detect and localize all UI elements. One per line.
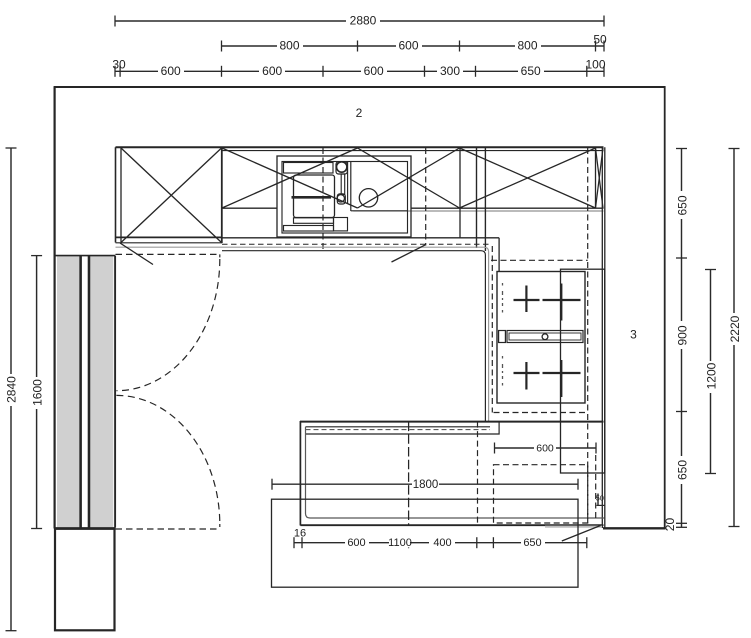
svg-text:3: 3 [630,328,637,342]
svg-text:600: 600 [262,64,282,78]
svg-text:300: 300 [440,64,460,78]
svg-text:650: 650 [675,195,689,215]
svg-text:20: 20 [663,518,677,532]
svg-text:800: 800 [517,39,537,53]
svg-text:600: 600 [536,443,554,455]
svg-text:30: 30 [112,58,126,72]
svg-text:16: 16 [294,528,306,540]
svg-text:2: 2 [356,106,363,120]
svg-text:1600: 1600 [30,379,44,406]
svg-text:1200: 1200 [704,362,718,389]
svg-text:1100: 1100 [388,537,412,549]
svg-text:600: 600 [347,537,365,549]
svg-text:100: 100 [585,57,605,71]
svg-text:50: 50 [596,494,604,503]
svg-text:900: 900 [675,325,689,345]
svg-text:650: 650 [675,460,689,480]
svg-text:400: 400 [433,537,451,549]
svg-text:600: 600 [161,64,181,78]
svg-text:50: 50 [593,33,607,47]
svg-text:2220: 2220 [728,315,742,342]
svg-text:650: 650 [523,537,541,549]
svg-text:800: 800 [279,39,299,53]
svg-text:600: 600 [364,64,384,78]
svg-text:2840: 2840 [5,376,19,403]
svg-text:650: 650 [521,64,541,78]
svg-text:1800: 1800 [413,479,439,491]
svg-text:2880: 2880 [350,14,377,28]
svg-text:600: 600 [398,39,418,53]
